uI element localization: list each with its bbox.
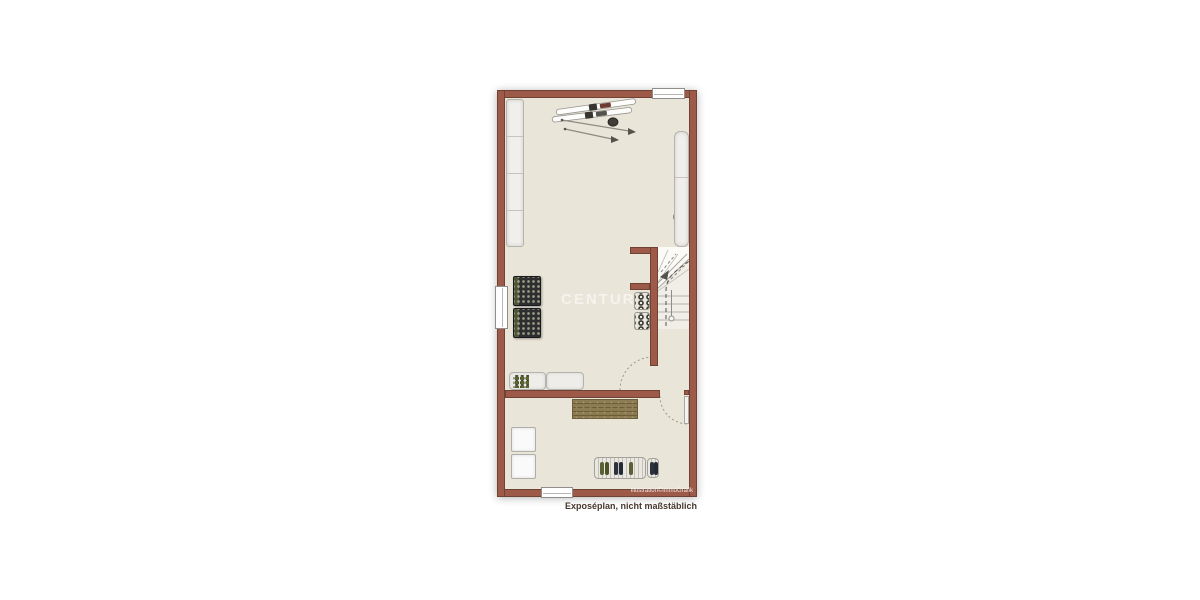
sideboard-right (546, 372, 584, 390)
storage-rack-dark-1 (513, 276, 541, 306)
window-left (495, 286, 508, 329)
interior-wall-stub (630, 283, 650, 290)
newel-post-icon (669, 316, 674, 321)
stair-rack-1 (634, 292, 650, 310)
doormat (572, 399, 638, 419)
appliance-box-1 (511, 427, 536, 452)
door-arc-inner (620, 357, 653, 390)
window-top (652, 88, 685, 99)
storage-rack-dark-2 (513, 308, 541, 338)
shoe-icon (614, 462, 618, 475)
cabinet-divider (675, 177, 688, 178)
illustration-credit: Illustration©immoGrafik (600, 488, 693, 494)
window-bottom (541, 487, 573, 498)
shoe-icon (600, 462, 604, 475)
shoe-bench (594, 457, 646, 479)
cabinet-divider (507, 136, 523, 137)
shoe-bench-end (647, 458, 659, 478)
ski-equipment-icon (552, 98, 636, 143)
shoe-icon (605, 462, 609, 475)
shoe-icon (654, 462, 658, 475)
interior-wall-hall (505, 390, 660, 398)
cabinet-divider (507, 210, 523, 211)
shoe-rack-green-icon (513, 375, 529, 388)
shoe-icon (619, 462, 623, 475)
floorplan-canvas: CENTURY 21 (0, 0, 1200, 600)
plan-caption: Exposéplan, nicht maßstäblich (500, 501, 697, 511)
stair-rack-2 (634, 312, 650, 330)
appliance-box-2 (511, 454, 536, 479)
interior-wall-stair-side (650, 247, 658, 366)
door-frame-notch (684, 390, 689, 395)
boiler-cabinet (674, 131, 689, 247)
outer-wall-right (689, 90, 697, 497)
cabinet-divider (507, 173, 523, 174)
wardrobe-cabinets (506, 99, 524, 247)
shoe-icon (629, 462, 633, 475)
staircase (656, 247, 691, 329)
